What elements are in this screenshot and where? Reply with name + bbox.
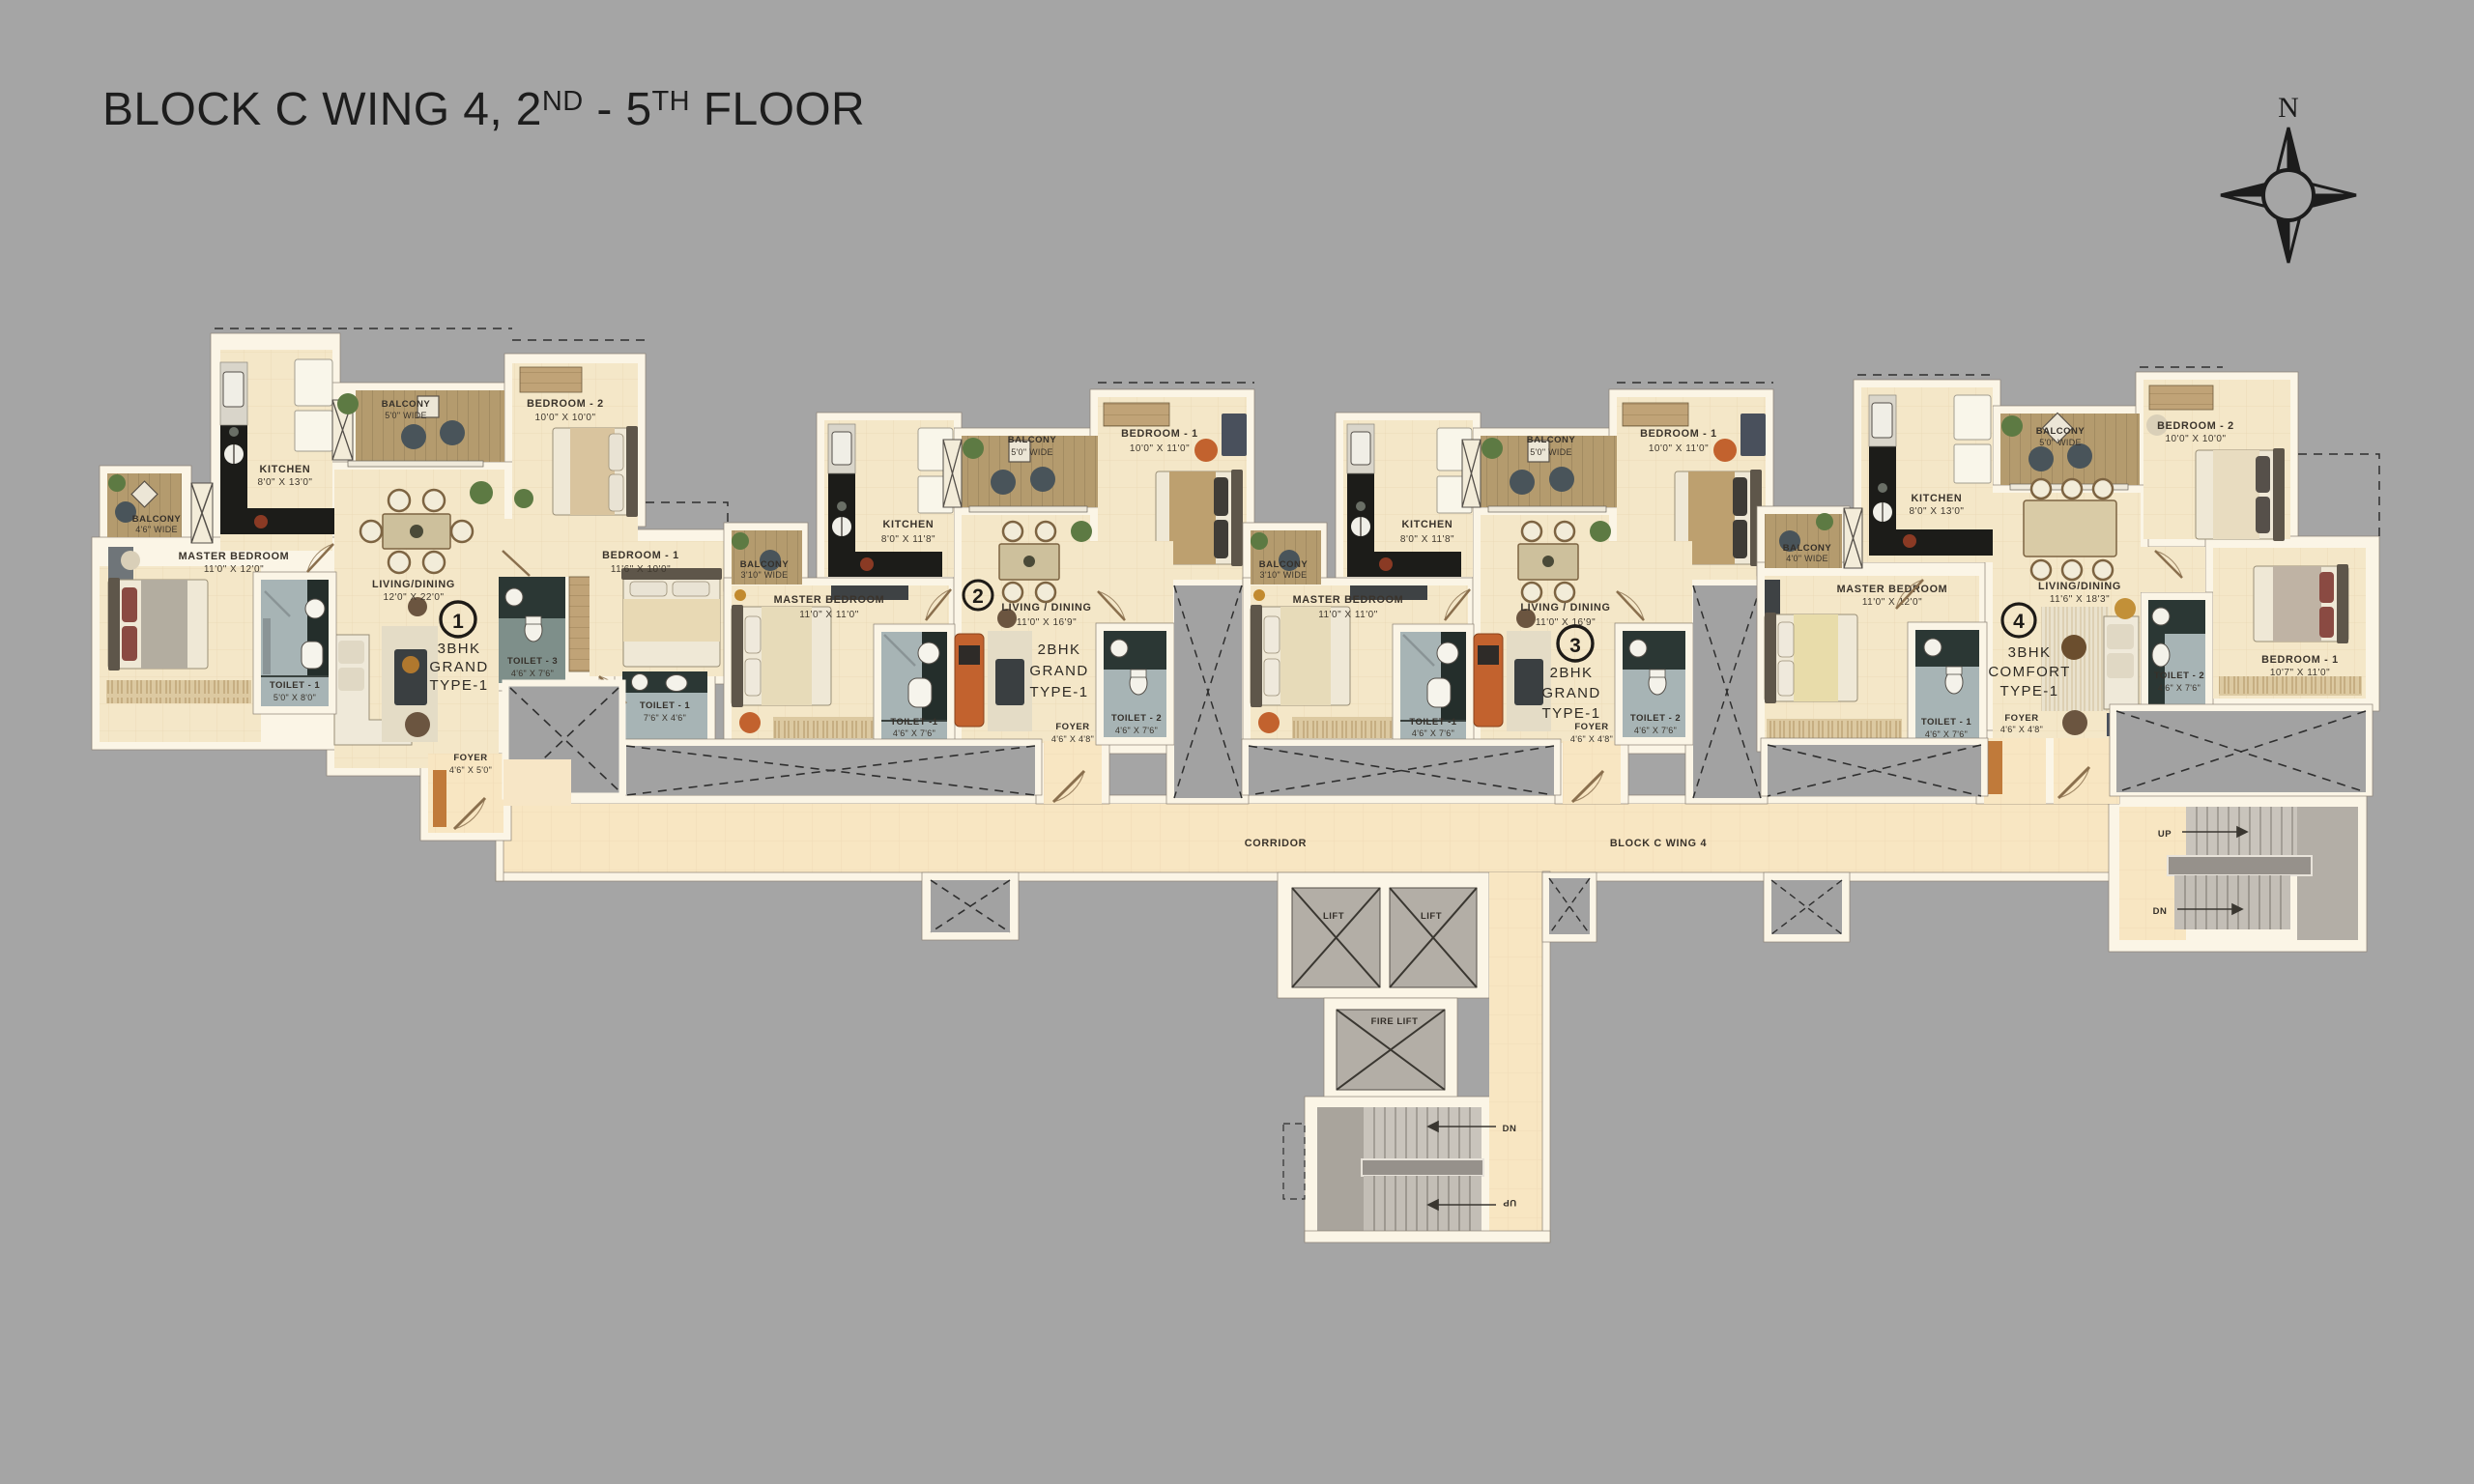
svg-text:TOILET - 3: TOILET - 3 (507, 656, 558, 667)
svg-text:4: 4 (2013, 611, 2025, 633)
svg-text:BEDROOM - 1: BEDROOM - 1 (602, 550, 679, 561)
svg-text:TOILET - 1: TOILET - 1 (640, 700, 691, 711)
svg-text:11'6" X 18'3": 11'6" X 18'3" (2050, 594, 2110, 605)
svg-text:KITCHEN: KITCHEN (1912, 493, 1963, 504)
svg-text:11'0" X 12'0": 11'0" X 12'0" (1862, 597, 1922, 608)
svg-text:KITCHEN: KITCHEN (260, 464, 311, 475)
svg-text:7'6" X 4'6": 7'6" X 4'6" (644, 713, 686, 723)
svg-text:CORRIDOR: CORRIDOR (1245, 838, 1307, 849)
svg-text:8'0" X 13'0": 8'0" X 13'0" (1910, 506, 1965, 517)
svg-text:BALCONY: BALCONY (132, 514, 182, 525)
svg-text:5'0" WIDE: 5'0" WIDE (385, 411, 427, 420)
svg-text:10'0" X 10'0": 10'0" X 10'0" (2165, 434, 2226, 444)
svg-text:FOYER: FOYER (453, 753, 487, 763)
svg-text:4'6" X 5'0": 4'6" X 5'0" (449, 765, 492, 775)
svg-text:TOILET - 1: TOILET - 1 (270, 680, 321, 691)
svg-text:5'0" WIDE: 5'0" WIDE (2039, 438, 2082, 447)
svg-text:UP: UP (2158, 829, 2172, 840)
svg-text:4'6" X 7'6": 4'6" X 7'6" (511, 669, 554, 678)
svg-text:BALCONY: BALCONY (2036, 426, 2086, 437)
svg-text:TYPE-1: TYPE-1 (1542, 705, 1601, 722)
svg-text:4'6" WIDE: 4'6" WIDE (135, 525, 178, 534)
svg-text:COMFORT: COMFORT (1988, 664, 2070, 680)
svg-text:5'0" X 8'0": 5'0" X 8'0" (273, 693, 316, 702)
svg-text:BEDROOM - 1: BEDROOM - 1 (2261, 654, 2339, 666)
svg-text:12'0" X 22'0": 12'0" X 22'0" (383, 592, 444, 603)
svg-text:TOILET - 2: TOILET - 2 (2154, 671, 2204, 681)
svg-text:BLOCK C WING 4: BLOCK C WING 4 (1610, 838, 1707, 849)
svg-text:BEDROOM - 2: BEDROOM - 2 (527, 398, 604, 410)
svg-text:TOILET - 1: TOILET - 1 (1921, 717, 1972, 728)
svg-text:2: 2 (972, 585, 984, 608)
svg-text:4'6" X 4'8": 4'6" X 4'8" (2000, 725, 2043, 734)
svg-text:TYPE-1: TYPE-1 (430, 677, 489, 694)
svg-text:DN: DN (1503, 1124, 1517, 1134)
svg-text:FIRE LIFT: FIRE LIFT (1371, 1016, 1419, 1027)
svg-text:GRAND: GRAND (1029, 663, 1088, 679)
svg-text:LIFT: LIFT (1323, 911, 1344, 922)
svg-text:TYPE-1: TYPE-1 (2000, 683, 2059, 699)
svg-text:UP: UP (1503, 1197, 1516, 1208)
svg-text:3: 3 (1569, 635, 1581, 657)
svg-text:3BHK: 3BHK (438, 641, 481, 657)
svg-text:GRAND: GRAND (429, 659, 488, 675)
svg-text:BEDROOM - 2: BEDROOM - 2 (2157, 420, 2234, 432)
svg-text:8'0" X 13'0": 8'0" X 13'0" (258, 477, 313, 488)
svg-text:TYPE-1: TYPE-1 (1030, 684, 1089, 700)
svg-text:MASTER BEDROOM: MASTER BEDROOM (179, 551, 290, 562)
svg-text:10'0" X 10'0": 10'0" X 10'0" (534, 413, 595, 423)
svg-text:4'0" WIDE: 4'0" WIDE (1786, 554, 1828, 563)
svg-text:GRAND: GRAND (1541, 685, 1600, 701)
svg-text:2BHK: 2BHK (1038, 642, 1081, 658)
svg-text:N: N (2278, 92, 2299, 124)
svg-text:LIVING/DINING: LIVING/DINING (372, 579, 455, 590)
svg-text:LIFT: LIFT (1421, 911, 1442, 922)
svg-text:1: 1 (452, 611, 464, 633)
svg-text:11'6" X 10'0": 11'6" X 10'0" (611, 564, 671, 575)
svg-text:MASTER BEDROOM: MASTER BEDROOM (1837, 584, 1948, 595)
svg-text:BLOCK C WING 4, 2ND - 5TH FLOO: BLOCK C WING 4, 2ND - 5TH FLOOR (102, 84, 865, 135)
svg-text:3BHK: 3BHK (2008, 644, 2052, 661)
svg-text:DN: DN (2153, 906, 2168, 917)
svg-text:FOYER: FOYER (2004, 713, 2038, 724)
svg-text:BALCONY: BALCONY (1783, 543, 1832, 554)
svg-text:BALCONY: BALCONY (382, 399, 431, 410)
svg-text:LIVING/DINING: LIVING/DINING (2038, 581, 2121, 592)
svg-text:4'6" X 7'6": 4'6" X 7'6" (1925, 729, 1968, 739)
svg-text:10'7" X 11'0": 10'7" X 11'0" (2270, 668, 2330, 678)
svg-text:4'6" X 7'6": 4'6" X 7'6" (2158, 683, 2201, 693)
svg-text:2BHK: 2BHK (1550, 665, 1594, 681)
